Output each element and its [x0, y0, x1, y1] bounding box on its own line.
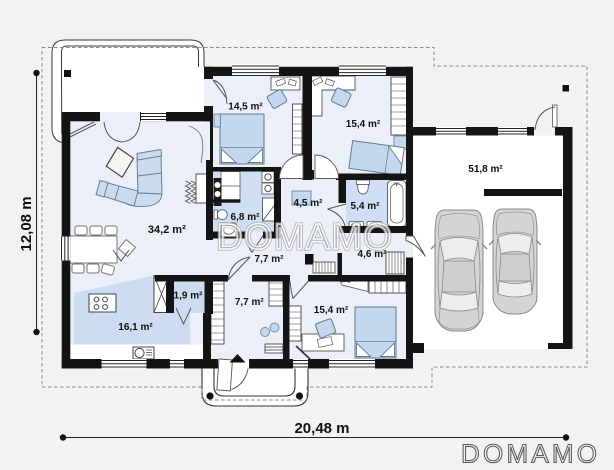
svg-text:1,9 m²: 1,9 m² — [174, 291, 204, 302]
svg-text:15,4 m²: 15,4 m² — [346, 119, 381, 130]
svg-text:51,8 m²: 51,8 m² — [468, 164, 503, 175]
svg-text:7,7 m²: 7,7 m² — [255, 254, 285, 265]
svg-text:34,2 m²: 34,2 m² — [148, 224, 186, 236]
svg-text:15,4 m²: 15,4 m² — [314, 305, 349, 316]
svg-text:20,48 m: 20,48 m — [294, 420, 349, 437]
svg-text:5,4 m²: 5,4 m² — [351, 201, 381, 212]
svg-text:14,5 m²: 14,5 m² — [228, 102, 263, 113]
svg-text:6,8 m²: 6,8 m² — [231, 212, 261, 223]
svg-text:4,6 m²: 4,6 m² — [358, 249, 388, 260]
svg-text:16,1 m²: 16,1 m² — [118, 322, 153, 333]
svg-text:12,08 m: 12,08 m — [18, 196, 35, 251]
svg-text:4,5 m²: 4,5 m² — [294, 198, 324, 209]
svg-text:7,7 m²: 7,7 m² — [235, 297, 265, 308]
